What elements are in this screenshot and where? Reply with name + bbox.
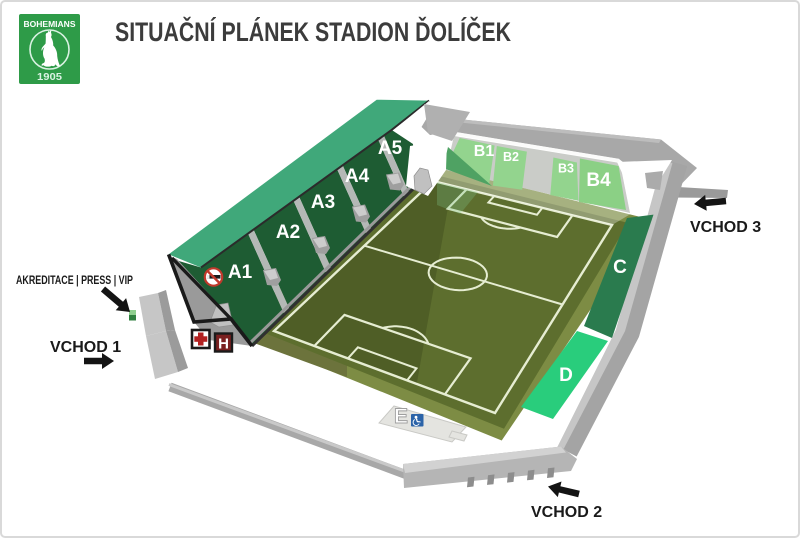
svg-text:VCHOD 2: VCHOD 2	[531, 504, 602, 521]
svg-text:A1: A1	[228, 262, 253, 283]
svg-text:B1: B1	[474, 143, 495, 160]
svg-text:B4: B4	[586, 170, 611, 191]
svg-text:D: D	[559, 365, 573, 386]
svg-text:B3: B3	[558, 162, 574, 176]
svg-text:AKREDITACE | PRESS | VIP: AKREDITACE | PRESS | VIP	[16, 275, 133, 287]
svg-text:VCHOD 1: VCHOD 1	[50, 339, 121, 356]
svg-text:SITUAČNÍ PLÁNEK STADION ĎOLÍČE: SITUAČNÍ PLÁNEK STADION ĎOLÍČEK	[115, 17, 511, 47]
svg-text:C: C	[613, 257, 627, 278]
svg-text:A3: A3	[311, 192, 335, 213]
svg-text:H: H	[218, 336, 229, 353]
svg-text:B2: B2	[503, 150, 519, 164]
svg-text:VCHOD 3: VCHOD 3	[690, 219, 761, 236]
svg-text:A2: A2	[276, 222, 300, 243]
svg-text:A5: A5	[378, 138, 403, 159]
svg-text:A4: A4	[345, 166, 370, 187]
svg-text:E: E	[394, 405, 408, 428]
svg-text:BOHEMIANS: BOHEMIANS	[24, 19, 76, 29]
svg-text:1905: 1905	[37, 72, 62, 83]
